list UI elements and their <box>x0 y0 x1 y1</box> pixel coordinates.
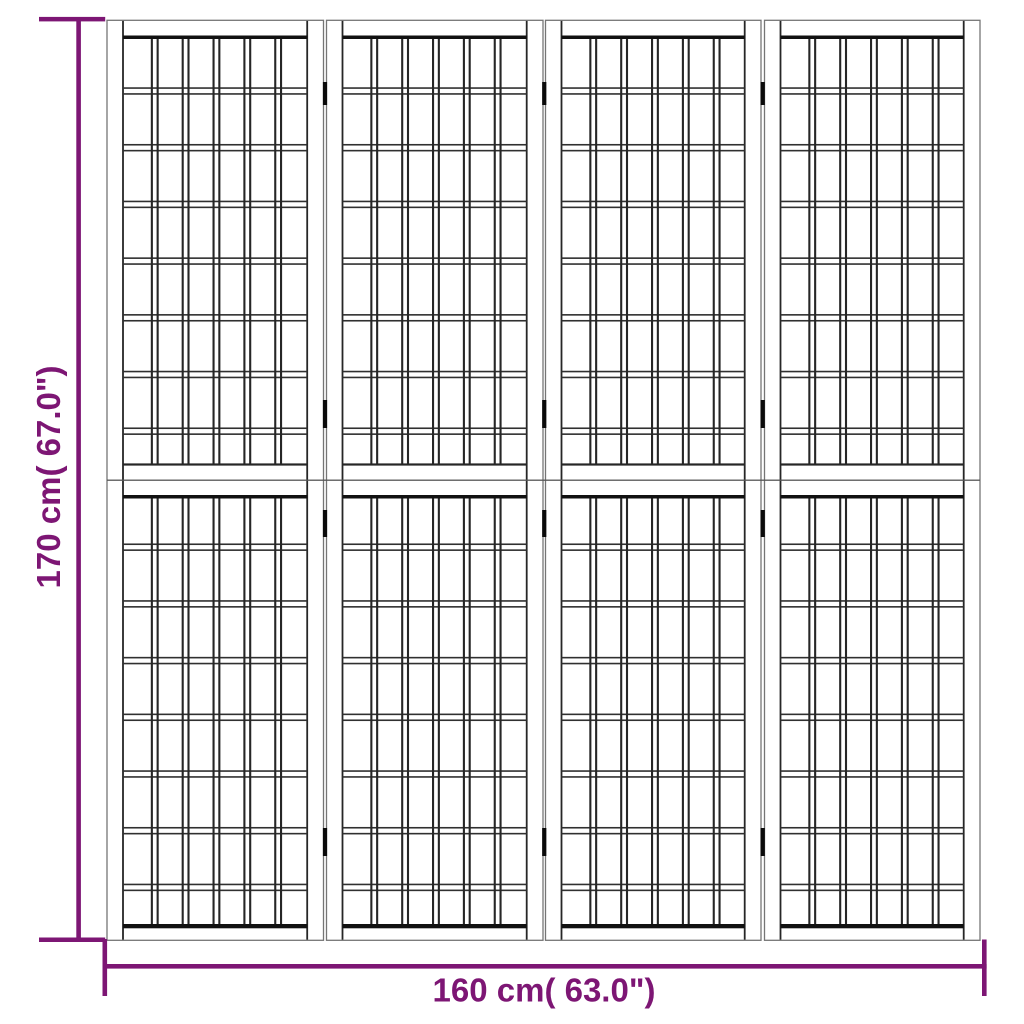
svg-text:160 cm( 63.0"): 160 cm( 63.0") <box>433 972 656 1009</box>
svg-text:170 cm( 67.0"): 170 cm( 67.0") <box>30 366 67 589</box>
